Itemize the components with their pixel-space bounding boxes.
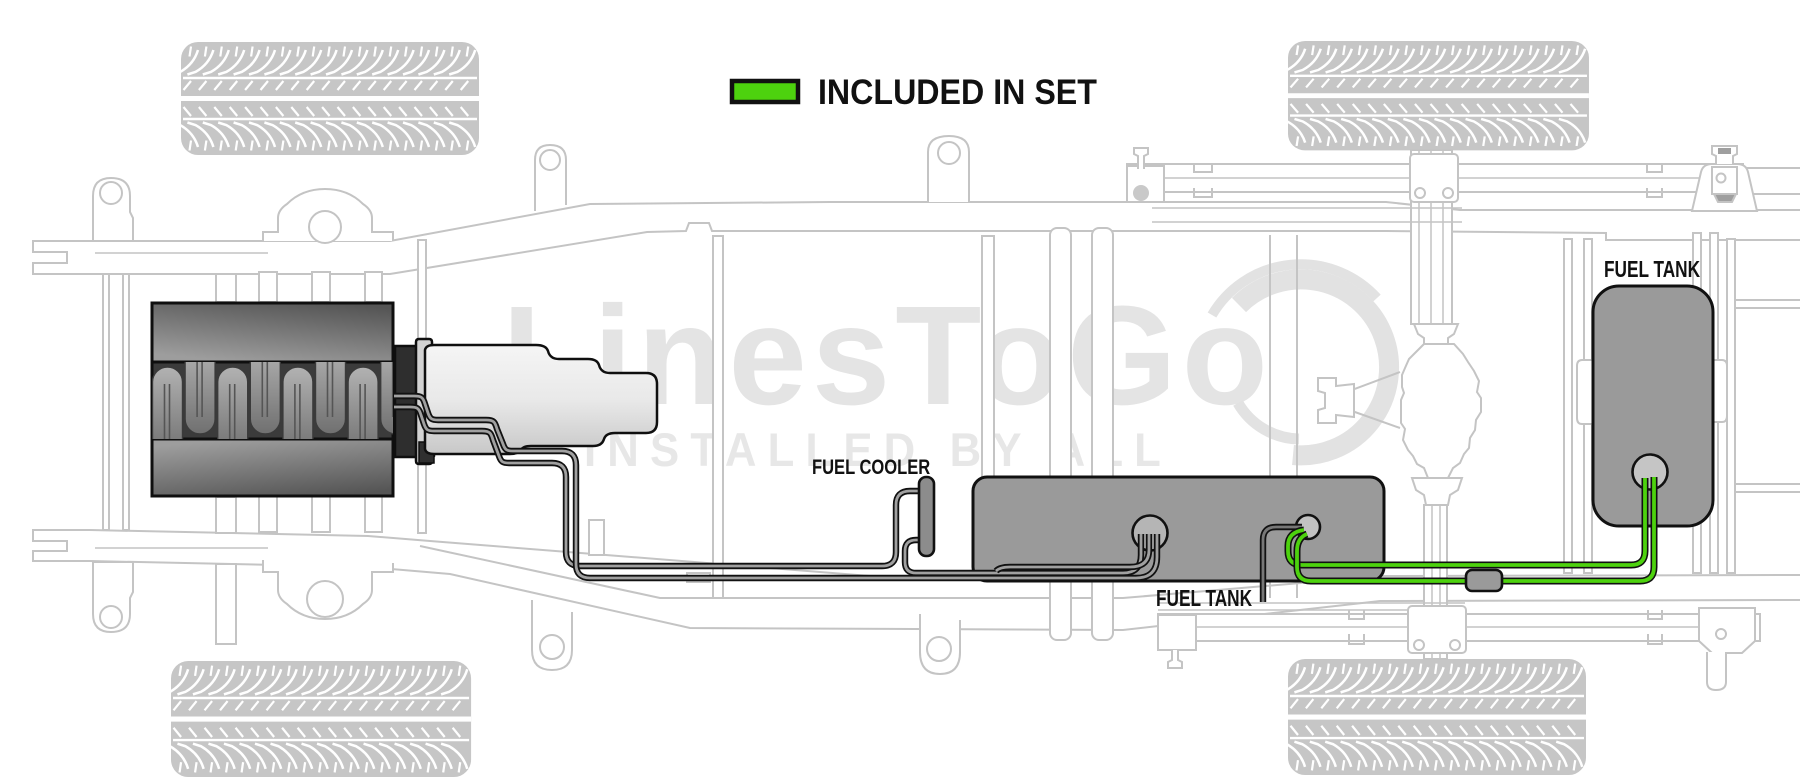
- svg-text:FUEL TANK: FUEL TANK: [1604, 258, 1700, 283]
- svg-text:FUEL COOLER: FUEL COOLER: [812, 456, 930, 480]
- svg-text:INCLUDED IN SET: INCLUDED IN SET: [818, 74, 1097, 113]
- svg-text:FUEL TANK: FUEL TANK: [1156, 587, 1252, 612]
